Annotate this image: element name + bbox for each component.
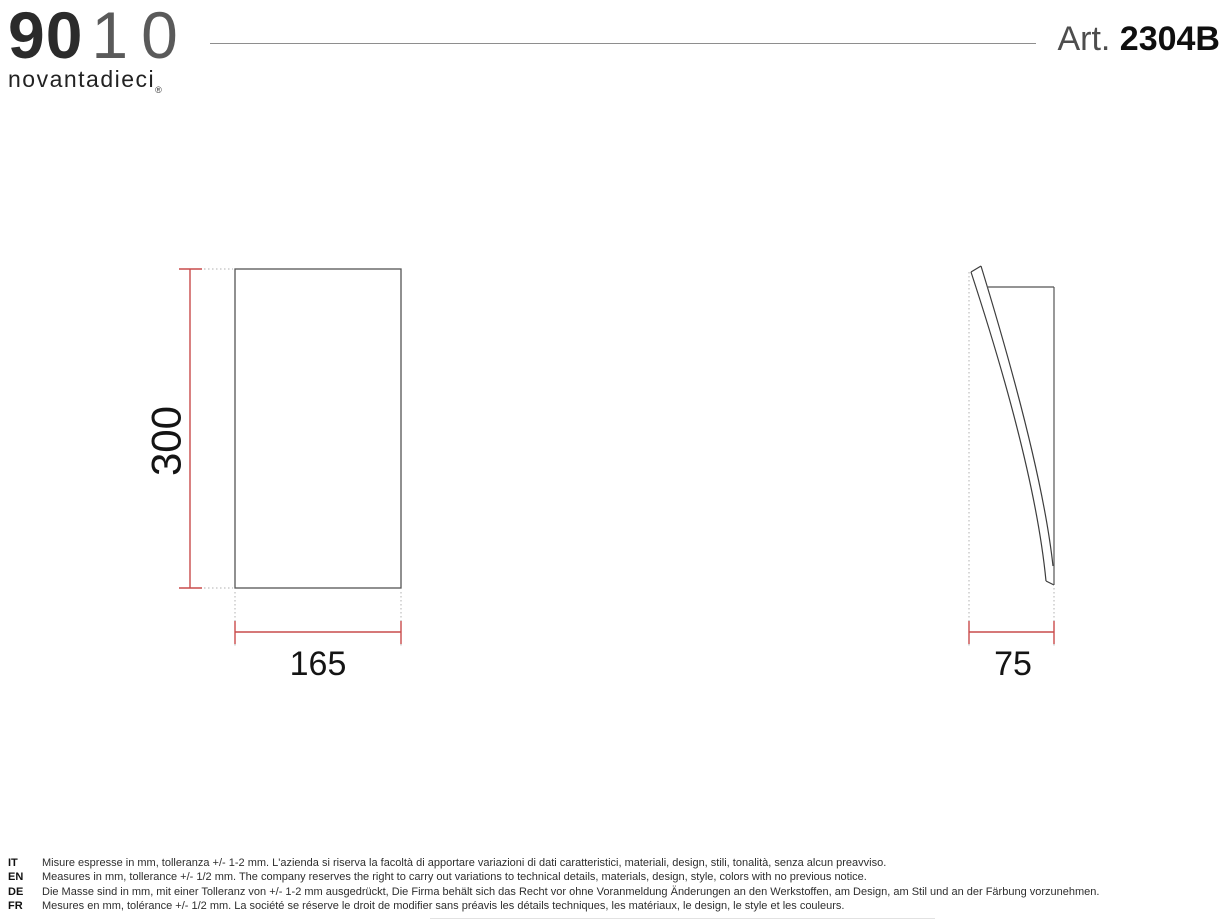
- language-code: EN: [8, 870, 42, 884]
- height-dimension-value: 300: [143, 406, 190, 476]
- side-view-top-cap: [971, 266, 981, 272]
- language-code: FR: [8, 899, 42, 913]
- width-dimension: 165: [235, 592, 401, 683]
- note-row-en: EN Measures in mm, tollerance +/- 1/2 mm…: [8, 870, 1222, 884]
- side-view-outer-curve: [971, 272, 1046, 581]
- depth-dimension: 75: [969, 621, 1054, 683]
- note-row-de: DE Die Masse sind in mm, mit einer Tolle…: [8, 885, 1222, 899]
- note-row-fr: FR Mesures en mm, tolérance +/- 1/2 mm. …: [8, 899, 1222, 913]
- front-view-outline: [235, 269, 401, 588]
- note-text: Mesures en mm, tolérance +/- 1/2 mm. La …: [42, 899, 844, 913]
- language-code: DE: [8, 885, 42, 899]
- front-view: [235, 269, 401, 588]
- technical-drawing: 300 165 75: [0, 0, 1226, 922]
- depth-dimension-value: 75: [994, 645, 1032, 683]
- note-text: Die Masse sind in mm, mit einer Tolleran…: [42, 885, 1099, 899]
- language-code: IT: [8, 856, 42, 870]
- note-text: Measures in mm, tollerance +/- 1/2 mm. T…: [42, 870, 867, 884]
- side-view-bottom-cap: [1046, 581, 1054, 585]
- page-bottom-rule: [430, 918, 935, 919]
- side-view-inner-curve: [981, 266, 1053, 566]
- datasheet-page: 9010 novantadieci® Art. 2304B 300 165: [0, 0, 1226, 922]
- note-row-it: IT Misure espresse in mm, tolleranza +/-…: [8, 856, 1222, 870]
- side-view: [969, 266, 1054, 646]
- note-text: Misure espresse in mm, tolleranza +/- 1-…: [42, 856, 886, 870]
- height-dimension: 300: [143, 269, 233, 588]
- footer-notes: IT Misure espresse in mm, tolleranza +/-…: [8, 856, 1222, 913]
- width-dimension-value: 165: [290, 645, 347, 683]
